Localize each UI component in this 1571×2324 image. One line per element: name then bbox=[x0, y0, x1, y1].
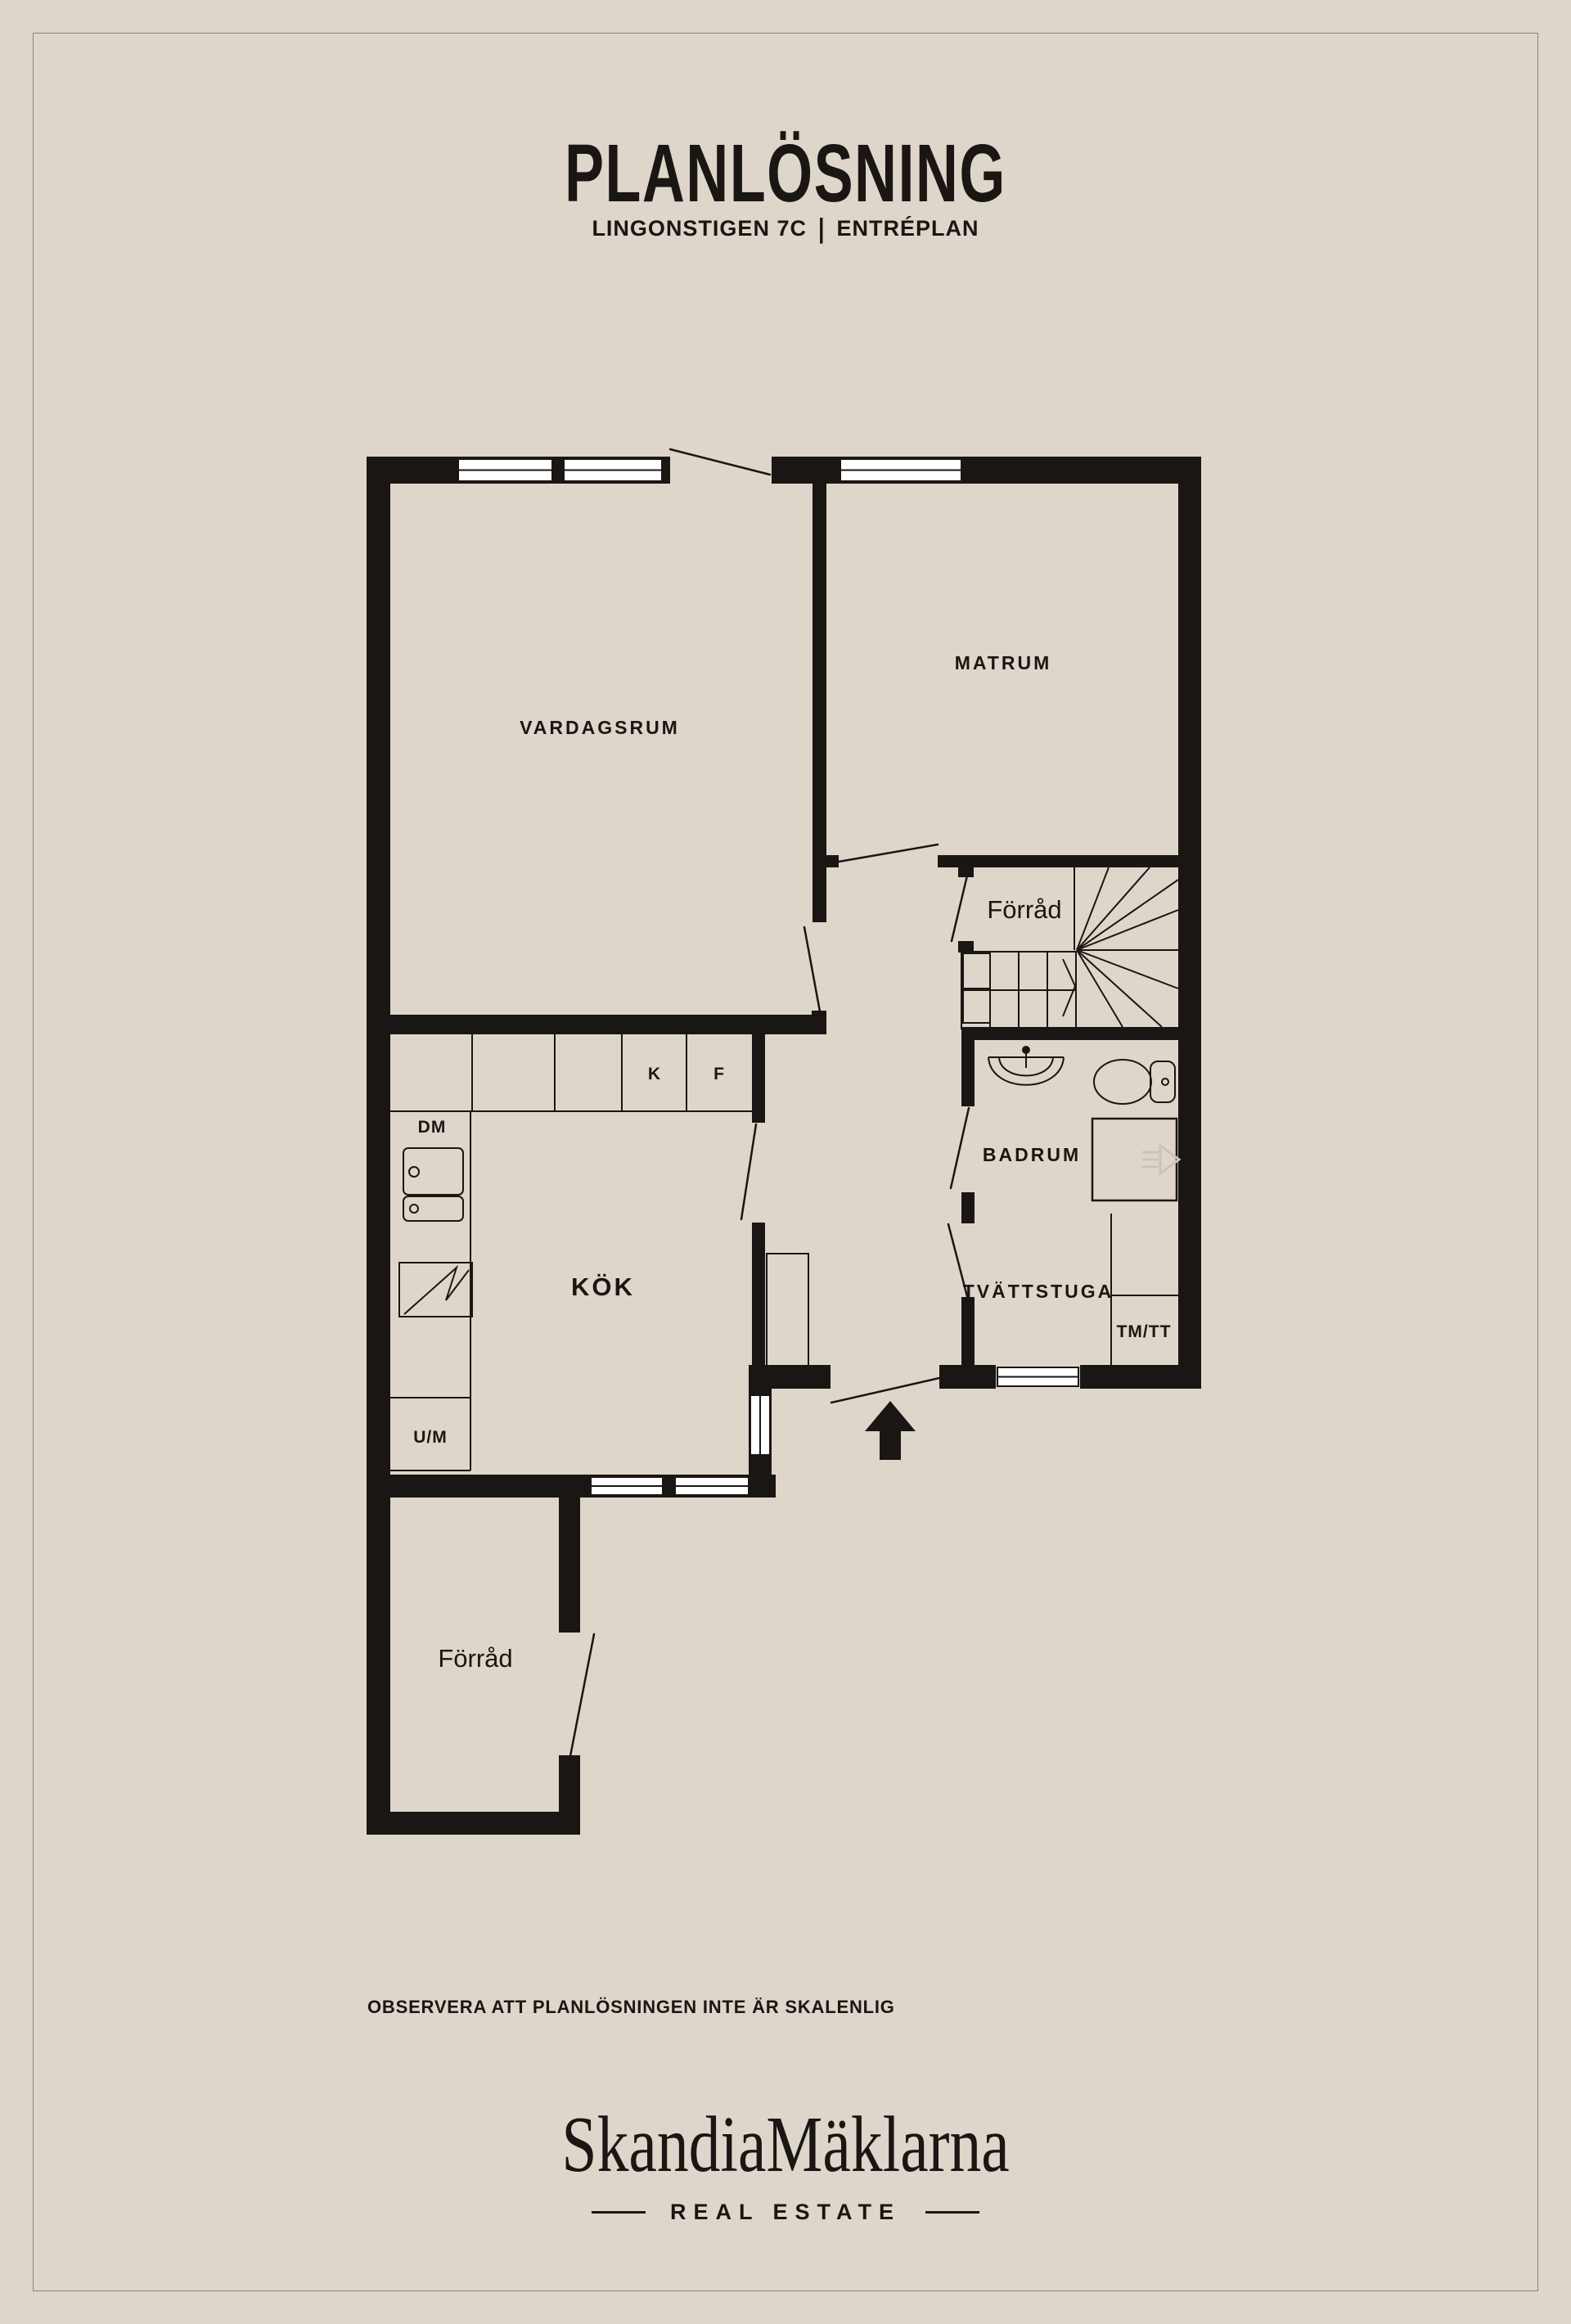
door-forrad-lower bbox=[570, 1634, 594, 1756]
door-badrum bbox=[951, 1108, 969, 1188]
door-terrace bbox=[670, 449, 770, 475]
label-dm: DM bbox=[418, 1118, 447, 1137]
door-vardagsrum bbox=[804, 927, 820, 1011]
tagline-rule-right bbox=[925, 2211, 979, 2214]
label-kok: KÖK bbox=[571, 1272, 635, 1301]
label-tmtt: TM/TT bbox=[1117, 1322, 1172, 1341]
door-kok bbox=[741, 1124, 756, 1219]
door-matrum bbox=[839, 844, 938, 862]
tagline-rule-left bbox=[592, 2211, 646, 2214]
label-vardagsrum: VARDAGSRUM bbox=[520, 717, 680, 738]
label-tvattstuga: TVÄTTSTUGA bbox=[963, 1281, 1114, 1302]
tagline-text: REAL ESTATE bbox=[670, 2200, 901, 2225]
hall-wardrobe bbox=[767, 1254, 808, 1375]
door-forrad-upper bbox=[952, 876, 967, 941]
brand-logo: SkandiaMäklarna bbox=[0, 2105, 1571, 2184]
hall-closets bbox=[963, 953, 990, 1023]
toilet-icon bbox=[1094, 1060, 1175, 1104]
stairs bbox=[961, 866, 1178, 1029]
window-kok-south-2 bbox=[675, 1477, 749, 1495]
label-forrad-upper: Förråd bbox=[987, 895, 1061, 924]
label-matrum: MATRUM bbox=[955, 652, 1052, 673]
entrance-arrow-icon bbox=[865, 1401, 916, 1460]
windows bbox=[458, 459, 1078, 1495]
dishwasher-icon bbox=[403, 1148, 463, 1221]
window-vardagsrum-1 bbox=[458, 459, 552, 481]
label-k: K bbox=[648, 1065, 661, 1083]
label-forrad-lower: Förråd bbox=[438, 1644, 512, 1673]
brand-tagline: REAL ESTATE bbox=[0, 2200, 1571, 2225]
window-vardagsrum-2 bbox=[564, 459, 662, 481]
label-badrum: BADRUM bbox=[983, 1144, 1081, 1165]
stove-icon bbox=[399, 1263, 472, 1317]
floor-plan: VARDAGSRUM MATRUM Förråd BADRUM TVÄTTSTU… bbox=[0, 0, 1571, 2324]
label-f: F bbox=[713, 1065, 725, 1083]
window-kok-east bbox=[750, 1395, 770, 1455]
shower-icon bbox=[1092, 1119, 1179, 1200]
window-tvattstuga bbox=[997, 1367, 1078, 1386]
door-entrance bbox=[831, 1378, 939, 1403]
window-matrum bbox=[840, 459, 961, 481]
scale-disclaimer: OBSERVERA ATT PLANLÖSNINGEN INTE ÄR SKAL… bbox=[367, 1997, 895, 2018]
sink-icon bbox=[988, 1046, 1064, 1085]
stair-winders bbox=[1077, 867, 1178, 1027]
tmtt-closet bbox=[1111, 1214, 1178, 1367]
label-um: U/M bbox=[413, 1428, 448, 1447]
stair-direction-arrow bbox=[1063, 959, 1075, 1016]
kitchen-counters bbox=[390, 1034, 752, 1471]
door-swings bbox=[570, 449, 969, 1756]
window-kok-south-1 bbox=[591, 1477, 663, 1495]
